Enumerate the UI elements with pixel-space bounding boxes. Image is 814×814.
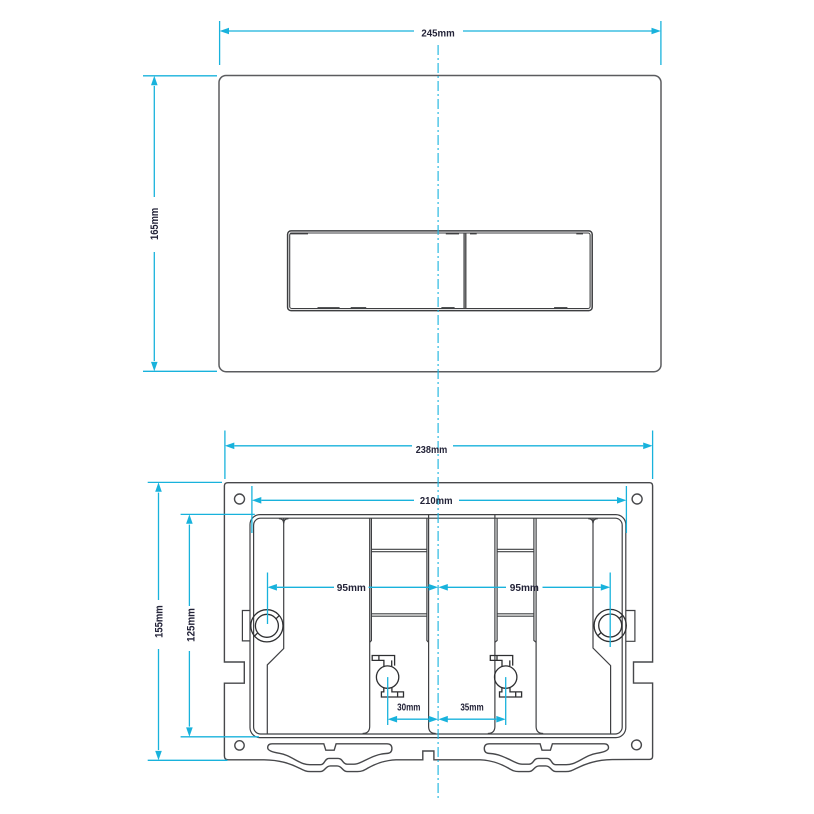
svg-text:165mm: 165mm xyxy=(150,208,162,240)
svg-text:245mm: 245mm xyxy=(421,28,454,39)
svg-text:210mm: 210mm xyxy=(420,496,453,507)
svg-text:95mm: 95mm xyxy=(337,583,366,594)
svg-text:95mm: 95mm xyxy=(510,583,539,594)
svg-text:35mm: 35mm xyxy=(460,702,483,713)
svg-text:125mm: 125mm xyxy=(186,608,198,642)
svg-text:155mm: 155mm xyxy=(154,605,166,638)
svg-text:238mm: 238mm xyxy=(416,444,448,456)
svg-text:30mm: 30mm xyxy=(397,702,420,713)
